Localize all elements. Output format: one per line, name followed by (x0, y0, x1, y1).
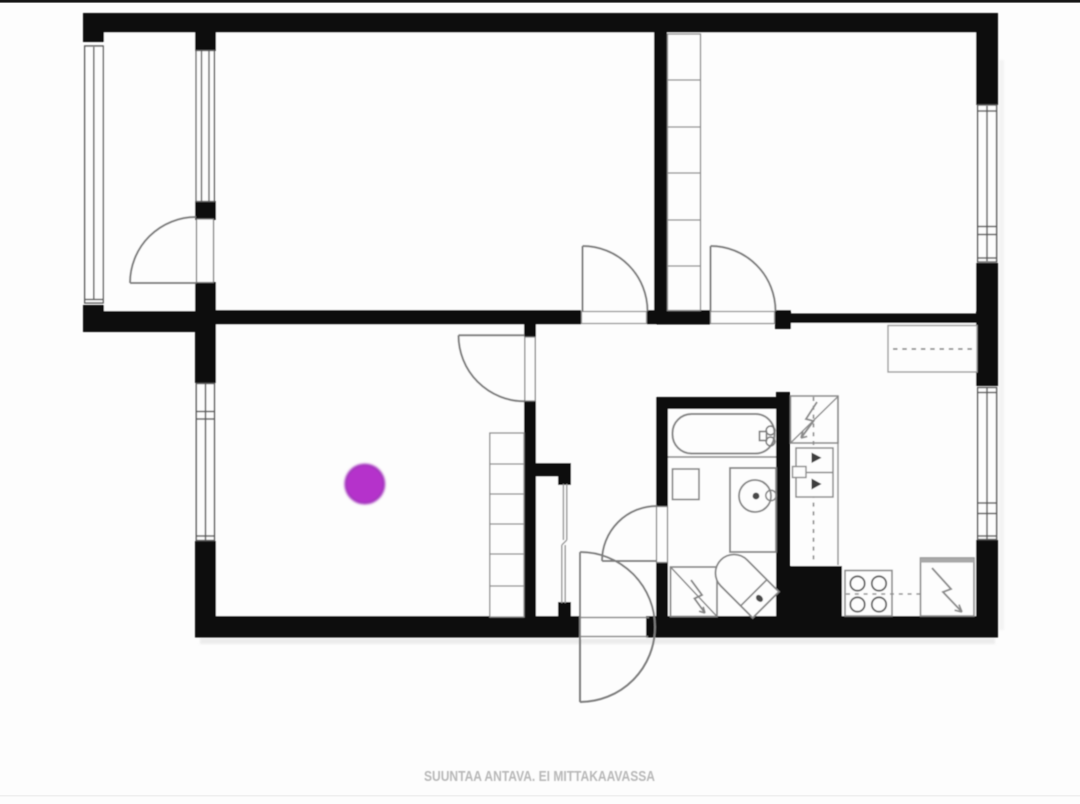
svg-text:SUUNTAA ANTAVA. EI MITTAKAAVAS: SUUNTAA ANTAVA. EI MITTAKAAVASSA (424, 768, 655, 785)
